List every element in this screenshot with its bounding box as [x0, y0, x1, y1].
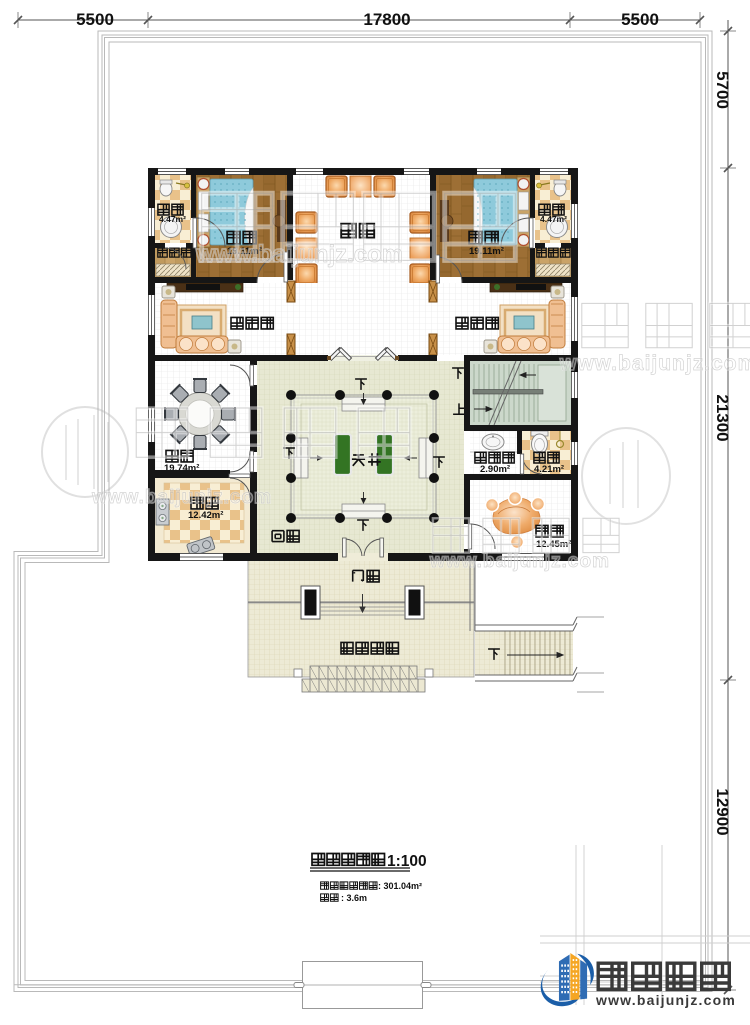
- svg-text:www.baijunjz.com: www.baijunjz.com: [429, 551, 610, 572]
- svg-text:19.11m²: 19.11m²: [469, 246, 504, 257]
- svg-text:www.baijunjz.com: www.baijunjz.com: [91, 487, 272, 508]
- svg-text:5500: 5500: [621, 10, 659, 29]
- svg-text:17800: 17800: [363, 10, 410, 29]
- svg-text:5700: 5700: [713, 71, 732, 109]
- svg-text:: 301.04m²: : 301.04m²: [378, 881, 422, 891]
- svg-text:2.90m²: 2.90m²: [480, 464, 510, 475]
- svg-text:www.baijunjz.com: www.baijunjz.com: [559, 352, 750, 375]
- svg-text:4.47m²: 4.47m²: [159, 214, 186, 224]
- svg-text:www.baijunjz.com: www.baijunjz.com: [195, 241, 403, 268]
- svg-text:12900: 12900: [713, 788, 732, 835]
- svg-text:21300: 21300: [713, 394, 732, 441]
- svg-text:www.baijunjz.com: www.baijunjz.com: [595, 992, 736, 1008]
- svg-text:12.42m²: 12.42m²: [188, 510, 223, 521]
- svg-text:5500: 5500: [76, 10, 114, 29]
- svg-text:4.47m²: 4.47m²: [540, 214, 567, 224]
- svg-text:: 3.6m: : 3.6m: [341, 893, 367, 903]
